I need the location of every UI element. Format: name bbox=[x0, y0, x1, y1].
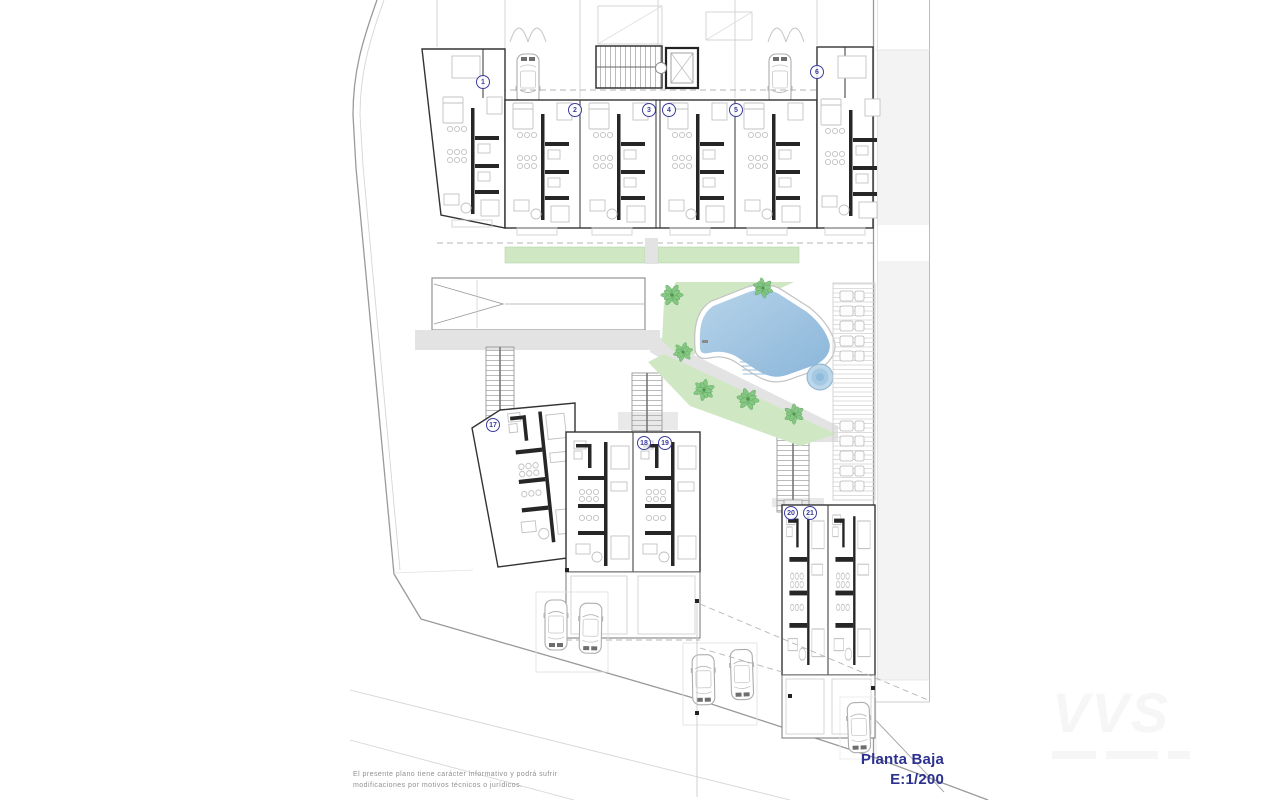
watermark-bars bbox=[1052, 751, 1222, 759]
disclaimer-note: El presente plano tiene carácter informa… bbox=[353, 770, 557, 792]
unit-number-4: 4 bbox=[662, 103, 676, 117]
unit-number-17: 17 bbox=[486, 418, 500, 432]
unit-number-1: 1 bbox=[476, 75, 490, 89]
watermark: VVS bbox=[1052, 680, 1222, 759]
unit-number-3: 3 bbox=[642, 103, 656, 117]
watermark-text: VVS bbox=[1052, 681, 1170, 744]
unit-number-19: 19 bbox=[658, 436, 672, 450]
disclaimer-line2: modificaciones por motivos técnicos o ju… bbox=[353, 781, 557, 792]
sun-deck bbox=[833, 283, 875, 500]
plan-scale: E:1/200 bbox=[861, 770, 944, 790]
rear-garden-strips bbox=[437, 238, 873, 264]
floor-plan-page: 1 2 3 4 5 6 17 18 19 20 21 VVS Planta Ba… bbox=[0, 0, 1280, 800]
plan-title-block: Planta Baja E:1/200 bbox=[861, 750, 944, 789]
plan-title: Planta Baja bbox=[861, 750, 944, 770]
unit-number-18: 18 bbox=[637, 436, 651, 450]
unit-number-21: 21 bbox=[803, 506, 817, 520]
pool-ladder bbox=[702, 340, 708, 343]
jacuzzi bbox=[807, 364, 833, 390]
disclaimer-line1: El presente plano tiene carácter informa… bbox=[353, 770, 557, 781]
swimming-pool bbox=[698, 286, 833, 379]
unit-number-6: 6 bbox=[810, 65, 824, 79]
staircase-core bbox=[596, 46, 698, 88]
parking-canopy bbox=[510, 28, 804, 42]
unit-number-5: 5 bbox=[729, 103, 743, 117]
garage-ramp bbox=[432, 278, 645, 338]
unit-number-20: 20 bbox=[784, 506, 798, 520]
unit-number-2: 2 bbox=[568, 103, 582, 117]
